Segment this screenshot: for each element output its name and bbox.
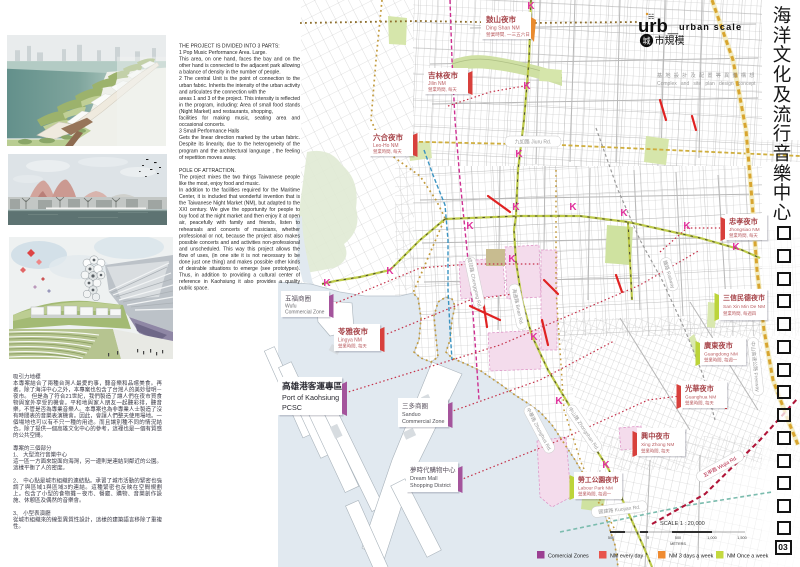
svg-text:營業時間, 每天: 營業時間, 每天	[428, 86, 457, 93]
svg-text:苓雅夜市: 苓雅夜市	[338, 326, 368, 336]
svg-text:1,500: 1,500	[737, 536, 747, 540]
svg-text:Xing Zhong NM: Xing Zhong NM	[641, 442, 674, 448]
svg-text:營業時間, 每週一: 營業時間, 每週一	[578, 491, 612, 498]
svg-text:城: 城	[643, 37, 651, 46]
svg-text:勞工公園夜市: 勞工公園夜市	[578, 475, 619, 484]
svg-text:鼓山夜市: 鼓山夜市	[486, 14, 516, 24]
svg-text:K: K	[530, 332, 538, 343]
svg-text:營業時間, 每週一: 營業時間, 每週一	[704, 357, 738, 364]
svg-text:K: K	[508, 254, 516, 265]
svg-text:500: 500	[675, 536, 681, 540]
svg-text:1,000: 1,000	[707, 536, 717, 540]
svg-text:Shopping District: Shopping District	[410, 483, 451, 489]
svg-text:San Xin Min De NM: San Xin Min De NM	[723, 304, 765, 310]
svg-text:K: K	[527, 1, 535, 12]
svg-text:K: K	[620, 208, 628, 219]
svg-text:K: K	[323, 278, 331, 289]
svg-text:0: 0	[647, 536, 649, 540]
svg-text:K: K	[569, 202, 577, 213]
svg-text:K: K	[555, 396, 563, 407]
svg-text:基地設計及配置等異動構想: 基地設計及配置等異動構想	[657, 71, 758, 79]
svg-text:NM 3 days a week: NM 3 days a week	[669, 554, 714, 560]
svg-text:NM every day: NM every day	[610, 554, 644, 560]
svg-text:K: K	[466, 221, 474, 232]
svg-text:500: 500	[608, 536, 614, 540]
svg-text:興中夜市: 興中夜市	[641, 432, 670, 441]
svg-text:Complex and site plan: Complex and site plan design concept	[657, 81, 756, 87]
svg-text:K: K	[386, 266, 394, 277]
svg-text:六合夜市: 六合夜市	[373, 132, 403, 142]
svg-text:Ding Shan NM: Ding Shan NM	[486, 26, 520, 32]
svg-text:營業時間, 每天: 營業時間, 每天	[338, 343, 367, 350]
svg-text:K: K	[683, 221, 691, 232]
svg-text:廣東夜市: 廣東夜市	[703, 341, 733, 350]
svg-text:Commercial Zone: Commercial Zone	[402, 419, 445, 425]
svg-text:K: K	[515, 149, 523, 160]
svg-text:Comercial Zones: Comercial Zones	[548, 554, 589, 560]
svg-text:三多商圈: 三多商圈	[402, 401, 428, 410]
svg-text:urb_: urb_	[638, 15, 679, 36]
svg-text:K: K	[732, 242, 740, 253]
svg-text:忠孝夜市: 忠孝夜市	[729, 217, 758, 226]
svg-text:Sanduo: Sanduo	[402, 412, 421, 418]
svg-text:SCALE 1 : 20,000: SCALE 1 : 20,000	[660, 521, 705, 527]
svg-text:市規模: 市規模	[655, 34, 685, 47]
svg-text:K: K	[512, 202, 520, 213]
svg-text:營業時間, 每天: 營業時間, 每天	[685, 400, 714, 407]
svg-text:光華夜市: 光華夜市	[684, 384, 714, 393]
svg-text:Dream Mall: Dream Mall	[410, 476, 438, 482]
svg-text:K: K	[523, 81, 531, 92]
svg-text:urban scale: urban scale	[679, 22, 742, 32]
svg-text:九如路 Jiuru Rd.: 九如路 Jiuru Rd.	[515, 139, 551, 146]
svg-text:三信民德夜市: 三信民德夜市	[723, 293, 765, 302]
svg-text:夢時代購物中心: 夢時代購物中心	[410, 465, 456, 474]
svg-text:NM Once a week: NM Once a week	[727, 554, 769, 560]
svg-text:營業時間, 每週四: 營業時間, 每週四	[723, 310, 756, 317]
svg-text:營業時間, 每天: 營業時間, 每天	[729, 232, 758, 239]
svg-text:吉林夜市: 吉林夜市	[428, 70, 458, 80]
svg-text:營業時間, 每天: 營業時間, 每天	[373, 148, 402, 155]
svg-text:營業時間, 一三五六日: 營業時間, 一三五六日	[486, 31, 530, 38]
svg-text:METERS: METERS	[670, 542, 686, 546]
svg-text:K: K	[602, 460, 610, 471]
svg-text:營業時間, 每天: 營業時間, 每天	[641, 448, 670, 455]
